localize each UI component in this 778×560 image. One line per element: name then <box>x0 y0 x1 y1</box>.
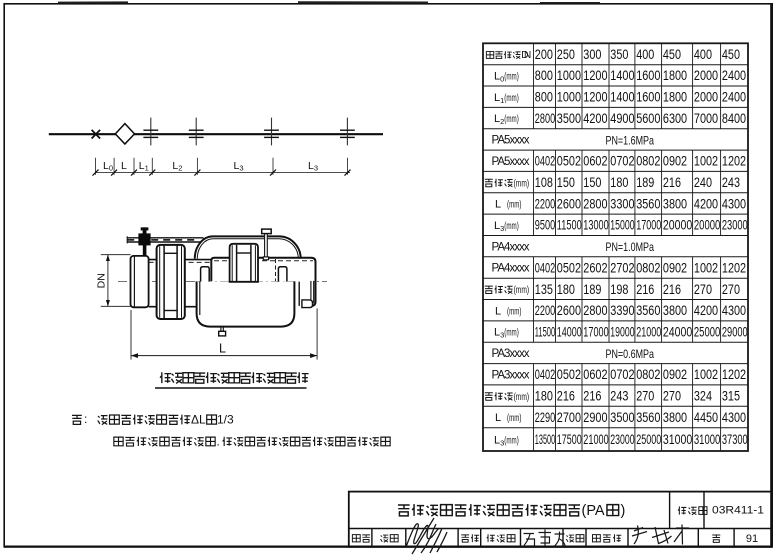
svg-text:250: 250 <box>557 46 575 62</box>
svg-text:L: L <box>495 412 507 424</box>
svg-text:3560: 3560 <box>636 195 660 211</box>
svg-text:4200: 4200 <box>694 302 718 318</box>
svg-text:23000: 23000 <box>722 217 748 233</box>
svg-text:2200: 2200 <box>535 302 556 318</box>
svg-text:11500: 11500 <box>535 323 556 339</box>
svg-text:2600: 2600 <box>557 302 581 318</box>
svg-text:L0(mm): L0(mm) <box>494 71 519 84</box>
svg-text:2800: 2800 <box>535 110 556 126</box>
svg-text:1800: 1800 <box>663 67 687 83</box>
svg-text:1202: 1202 <box>722 259 746 275</box>
svg-text:216: 216 <box>663 174 681 190</box>
svg-text:198: 198 <box>610 281 628 297</box>
svg-text:31000: 31000 <box>663 431 693 447</box>
svg-text:1600: 1600 <box>636 89 660 105</box>
svg-text:324: 324 <box>694 388 712 404</box>
svg-text:4200: 4200 <box>694 195 718 211</box>
svg-text:PA3xxxx: PA3xxxx <box>492 369 530 381</box>
svg-text:135: 135 <box>535 281 553 297</box>
svg-text:216: 216 <box>663 281 681 297</box>
svg-text:2800: 2800 <box>583 195 607 211</box>
svg-text:0802: 0802 <box>636 153 660 169</box>
svg-text:L3: L3 <box>308 160 318 173</box>
svg-text:31000: 31000 <box>694 431 721 447</box>
svg-text:4300: 4300 <box>722 302 746 318</box>
svg-text:189: 189 <box>583 281 601 297</box>
svg-text:0502: 0502 <box>557 153 581 169</box>
svg-text:2602: 2602 <box>583 259 607 275</box>
svg-text:(mm): (mm) <box>514 285 530 296</box>
svg-text:800: 800 <box>535 67 553 83</box>
svg-text:L2: L2 <box>172 160 182 173</box>
svg-text:1202: 1202 <box>722 153 746 169</box>
svg-text:0502: 0502 <box>557 366 581 382</box>
svg-text:17000: 17000 <box>636 217 661 233</box>
svg-text:0802: 0802 <box>636 366 660 382</box>
svg-text:(mm): (mm) <box>507 200 522 211</box>
svg-text:L: L <box>121 160 127 172</box>
svg-text:11500: 11500 <box>557 217 582 233</box>
svg-text:1002: 1002 <box>694 153 718 169</box>
svg-text:400: 400 <box>694 46 712 62</box>
svg-text:0502: 0502 <box>557 259 581 275</box>
svg-text:L2(mm): L2(mm) <box>494 113 519 126</box>
svg-text:14000: 14000 <box>557 323 582 339</box>
svg-text:216: 216 <box>557 388 575 404</box>
svg-text:(mm): (mm) <box>507 306 522 317</box>
svg-text:0402: 0402 <box>535 366 556 382</box>
svg-text:25000: 25000 <box>636 431 661 447</box>
svg-text:L0: L0 <box>103 160 113 173</box>
svg-text:216: 216 <box>636 281 654 297</box>
svg-text:L: L <box>495 199 507 211</box>
svg-text:2400: 2400 <box>722 89 746 105</box>
svg-text:.: . <box>217 434 220 448</box>
svg-text:1200: 1200 <box>583 89 607 105</box>
svg-text:13500: 13500 <box>535 431 556 447</box>
svg-text:3560: 3560 <box>636 409 660 425</box>
svg-text:3800: 3800 <box>663 409 687 425</box>
svg-text:15000: 15000 <box>610 217 634 233</box>
svg-text:7000: 7000 <box>694 110 718 126</box>
svg-text:270: 270 <box>722 281 740 297</box>
svg-text:1202: 1202 <box>722 366 746 382</box>
svg-text:PA5xxxx: PA5xxxx <box>492 156 530 168</box>
svg-text:PN=0.6MPa: PN=0.6MPa <box>606 347 655 361</box>
svg-text:9500: 9500 <box>535 217 556 233</box>
svg-text:PA4xxxx: PA4xxxx <box>492 241 530 253</box>
svg-text:2200: 2200 <box>535 195 556 211</box>
svg-text:L1: L1 <box>139 160 149 173</box>
svg-text:(mm): (mm) <box>514 392 530 403</box>
svg-text:21000: 21000 <box>636 323 661 339</box>
svg-text:): ) <box>621 503 626 519</box>
svg-text:0602: 0602 <box>583 366 607 382</box>
svg-text:1002: 1002 <box>694 259 718 275</box>
svg-text:L3(mm): L3(mm) <box>494 435 519 448</box>
svg-text:200: 200 <box>535 46 553 62</box>
svg-text:1000: 1000 <box>557 67 581 83</box>
svg-text:ΔL: ΔL <box>191 413 206 427</box>
svg-text:189: 189 <box>636 174 654 190</box>
svg-text:L: L <box>495 305 507 317</box>
svg-text:L3(mm): L3(mm) <box>494 327 519 340</box>
svg-text:350: 350 <box>610 46 628 62</box>
svg-text:4300: 4300 <box>722 195 746 211</box>
svg-text:L: L <box>219 342 226 356</box>
svg-text:108: 108 <box>535 174 553 190</box>
svg-text:1002: 1002 <box>694 366 718 382</box>
svg-text:4300: 4300 <box>722 409 746 425</box>
svg-text:1000: 1000 <box>557 89 581 105</box>
svg-text:150: 150 <box>583 174 601 190</box>
svg-text:13000: 13000 <box>583 217 609 233</box>
svg-text:1400: 1400 <box>610 89 634 105</box>
svg-text:2700: 2700 <box>557 409 581 425</box>
svg-text:21000: 21000 <box>583 431 609 447</box>
svg-text:243: 243 <box>722 174 740 190</box>
svg-text:180: 180 <box>610 174 628 190</box>
svg-text:400: 400 <box>636 46 654 62</box>
svg-text:2400: 2400 <box>722 67 746 83</box>
svg-text:3800: 3800 <box>663 302 687 318</box>
svg-text:0402: 0402 <box>535 259 556 275</box>
svg-text:3390: 3390 <box>610 302 634 318</box>
svg-text:19000: 19000 <box>610 323 634 339</box>
svg-text:(PA: (PA <box>582 503 605 519</box>
svg-text:3500: 3500 <box>610 409 634 425</box>
svg-text:L3(mm): L3(mm) <box>494 220 519 233</box>
svg-text:0402: 0402 <box>535 153 556 169</box>
svg-text:03R411-1: 03R411-1 <box>712 505 764 517</box>
svg-text:243: 243 <box>610 388 628 404</box>
svg-text:L1(mm): L1(mm) <box>494 92 519 105</box>
svg-text:5600: 5600 <box>636 110 660 126</box>
svg-text:PA3xxxx: PA3xxxx <box>492 348 530 360</box>
svg-text:2000: 2000 <box>694 89 718 105</box>
svg-text:2702: 2702 <box>610 259 634 275</box>
svg-text:2600: 2600 <box>557 195 581 211</box>
svg-text:270: 270 <box>694 281 712 297</box>
svg-text:0702: 0702 <box>610 366 634 382</box>
svg-text:17500: 17500 <box>557 431 582 447</box>
svg-text:2900: 2900 <box>583 409 607 425</box>
svg-text:L3: L3 <box>234 160 244 173</box>
svg-text:1600: 1600 <box>636 67 660 83</box>
svg-text:PA5xxxx: PA5xxxx <box>492 135 530 147</box>
svg-text:0702: 0702 <box>610 153 634 169</box>
svg-text:6300: 6300 <box>663 110 687 126</box>
svg-text:2290: 2290 <box>535 409 556 425</box>
svg-text:2000: 2000 <box>694 67 718 83</box>
svg-text:24000: 24000 <box>663 323 693 339</box>
svg-text:1/3: 1/3 <box>217 413 234 427</box>
svg-text:1200: 1200 <box>583 67 607 83</box>
svg-text:29000: 29000 <box>722 323 748 339</box>
svg-text:3800: 3800 <box>663 195 687 211</box>
svg-text:91: 91 <box>746 533 758 545</box>
svg-text:25000: 25000 <box>694 323 721 339</box>
svg-text:37300: 37300 <box>722 431 748 447</box>
svg-text:4200: 4200 <box>583 110 607 126</box>
svg-text:800: 800 <box>535 89 553 105</box>
svg-text:23000: 23000 <box>610 431 634 447</box>
svg-text:(mm): (mm) <box>514 178 530 189</box>
svg-text:180: 180 <box>557 281 575 297</box>
svg-text:2800: 2800 <box>583 302 607 318</box>
svg-text:DN: DN <box>96 273 108 288</box>
svg-text:(mm): (mm) <box>507 413 522 424</box>
svg-text:1400: 1400 <box>610 67 634 83</box>
svg-text:PA4xxxx: PA4xxxx <box>492 263 530 275</box>
svg-text:20000: 20000 <box>694 217 721 233</box>
svg-text:180: 180 <box>535 388 553 404</box>
svg-text:3560: 3560 <box>636 302 660 318</box>
svg-text:240: 240 <box>694 174 712 190</box>
svg-text:216: 216 <box>583 388 601 404</box>
svg-text:8400: 8400 <box>722 110 746 126</box>
svg-text:270: 270 <box>663 388 681 404</box>
svg-text:3500: 3500 <box>557 110 581 126</box>
svg-text:0902: 0902 <box>663 366 687 382</box>
svg-text:0902: 0902 <box>663 153 687 169</box>
svg-text:17000: 17000 <box>583 323 609 339</box>
svg-text:PN=1.6MPa: PN=1.6MPa <box>606 133 655 147</box>
svg-text:0602: 0602 <box>583 153 607 169</box>
svg-text:DN: DN <box>521 50 531 61</box>
svg-text:0802: 0802 <box>636 259 660 275</box>
svg-text:450: 450 <box>663 46 681 62</box>
svg-text:PN=1.0MPa: PN=1.0MPa <box>606 240 655 254</box>
svg-text:450: 450 <box>722 46 740 62</box>
svg-text:1800: 1800 <box>663 89 687 105</box>
svg-text:0902: 0902 <box>663 259 687 275</box>
svg-text:3300: 3300 <box>610 195 634 211</box>
svg-text:4450: 4450 <box>694 409 718 425</box>
svg-text:20000: 20000 <box>663 217 693 233</box>
svg-text:300: 300 <box>583 46 601 62</box>
svg-text:4900: 4900 <box>610 110 634 126</box>
svg-text::: : <box>84 412 87 426</box>
svg-text:150: 150 <box>557 174 575 190</box>
svg-text:270: 270 <box>636 388 654 404</box>
svg-text:315: 315 <box>722 388 740 404</box>
